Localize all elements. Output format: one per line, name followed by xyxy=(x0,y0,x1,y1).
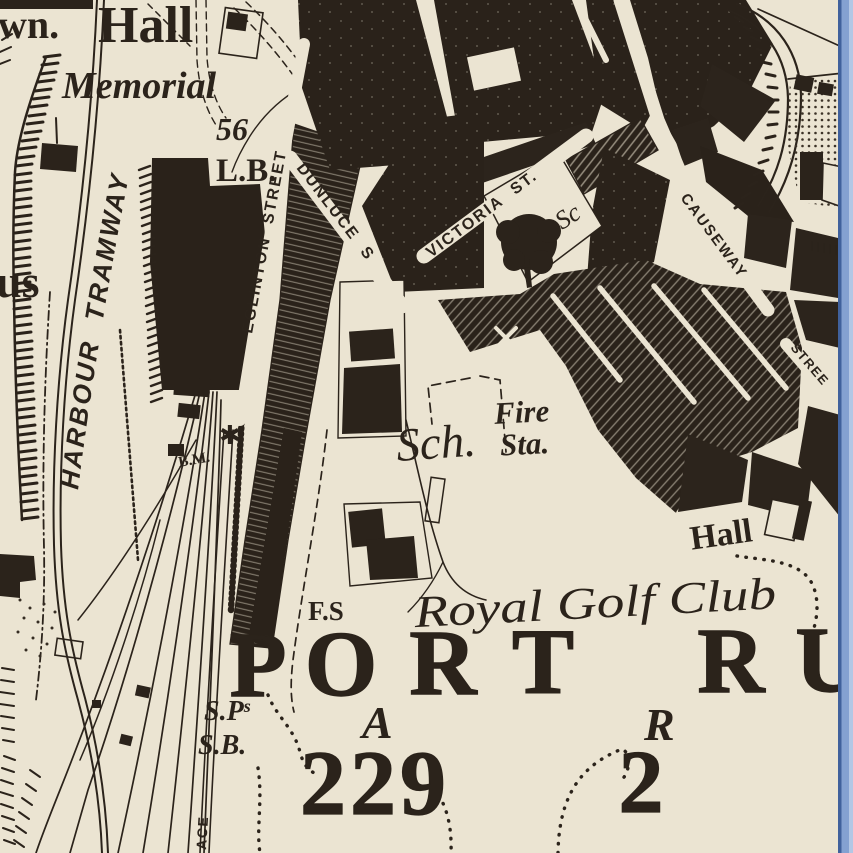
svg-text:Sch.: Sch. xyxy=(395,415,478,472)
svg-text:wn.: wn. xyxy=(0,2,59,47)
svg-text:O: O xyxy=(305,613,377,716)
svg-text:R: R xyxy=(409,612,477,715)
svg-text:P: P xyxy=(230,614,287,717)
svg-text:Hall: Hall xyxy=(98,0,193,54)
svg-text:us: us xyxy=(0,256,39,307)
svg-text:Memorial: Memorial xyxy=(61,65,217,107)
svg-text:✱: ✱ xyxy=(219,421,241,450)
svg-text:229: 229 xyxy=(300,732,450,834)
svg-text:T: T xyxy=(512,611,574,714)
svg-text:R: R xyxy=(697,610,765,713)
svg-text:56: 56 xyxy=(216,111,248,147)
svg-text:2: 2 xyxy=(619,733,664,832)
svg-text:ACE: ACE xyxy=(193,815,211,850)
svg-text:Sta.: Sta. xyxy=(499,425,550,463)
svg-text:S.B.: S.B. xyxy=(198,730,246,761)
